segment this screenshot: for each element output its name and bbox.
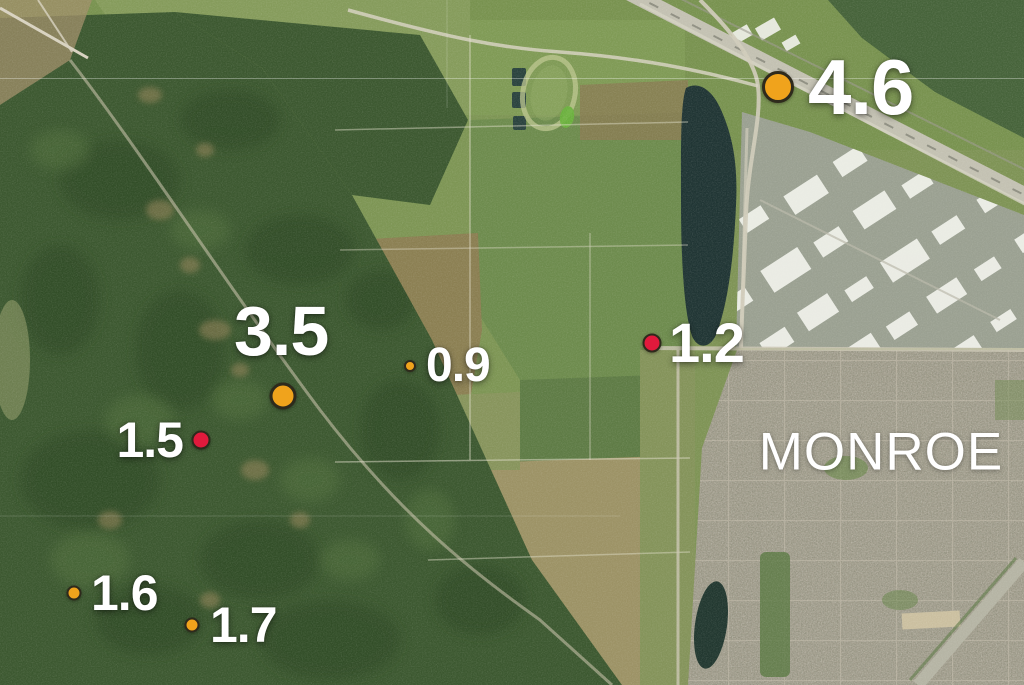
- quake-magnitude-label: 0.9: [426, 342, 490, 390]
- quake-dot[interactable]: [762, 71, 794, 103]
- quake-dot[interactable]: [643, 334, 662, 353]
- city-label: MONROE: [759, 422, 1004, 483]
- quake-magnitude-label: 3.5: [234, 296, 328, 366]
- earthquake-map: 4.6 3.5 0.9 1.2 1.5 1.6 1.7 MONROE: [0, 0, 1024, 685]
- quake-magnitude-label: 1.7: [210, 600, 277, 650]
- quake-magnitude-label: 1.2: [669, 315, 744, 371]
- quake-dot[interactable]: [192, 431, 211, 450]
- quake-dot[interactable]: [270, 383, 297, 410]
- quake-magnitude-label: 1.6: [91, 568, 158, 618]
- quake-magnitude-label: 4.6: [808, 48, 913, 126]
- quake-dot[interactable]: [404, 360, 416, 372]
- quake-magnitude-label: 1.5: [116, 415, 183, 465]
- quake-dot[interactable]: [185, 618, 200, 633]
- quake-dot[interactable]: [67, 586, 82, 601]
